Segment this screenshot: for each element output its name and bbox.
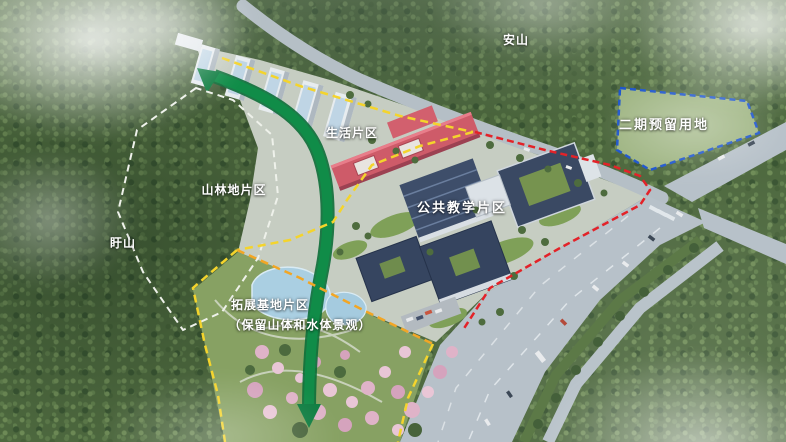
label-expansion-zone-note: （保留山体和水体景观）	[228, 316, 371, 333]
label-mountain-xushan: 盱山	[110, 234, 136, 251]
label-teaching-zone: 公共教学片区	[417, 197, 507, 216]
label-mountain-anshan: 安山	[503, 31, 529, 48]
site-plan-rendering: 安山 二期预留用地 生活片区 山林地片区 盱山 公共教学片区 拓展基地片区 （保…	[0, 0, 786, 442]
label-forest-zone: 山林地片区	[201, 181, 266, 198]
label-phase2-zone: 二期预留用地	[619, 114, 709, 133]
label-living-zone: 生活片区	[326, 124, 378, 141]
label-expansion-zone: 拓展基地片区	[231, 296, 309, 313]
